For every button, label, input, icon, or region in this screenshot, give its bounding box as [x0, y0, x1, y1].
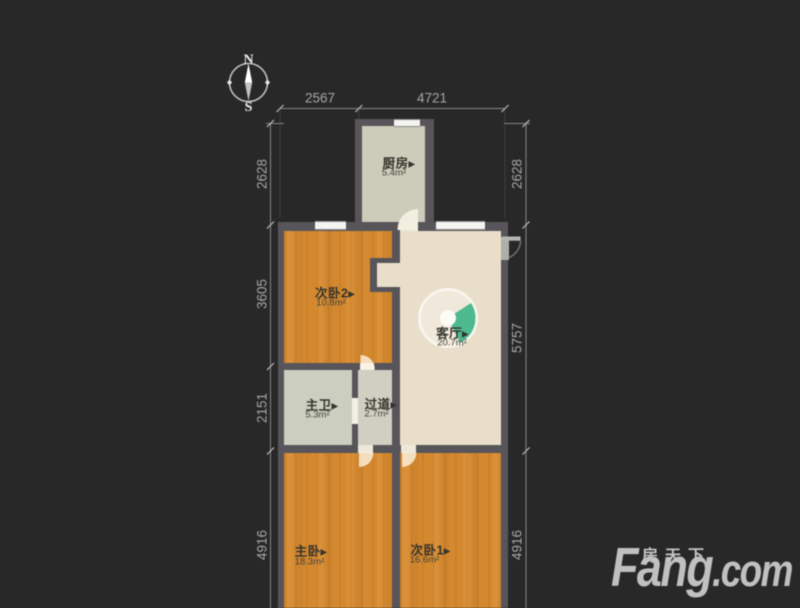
svg-text:N: N: [243, 53, 253, 68]
svg-text:S: S: [245, 100, 253, 115]
